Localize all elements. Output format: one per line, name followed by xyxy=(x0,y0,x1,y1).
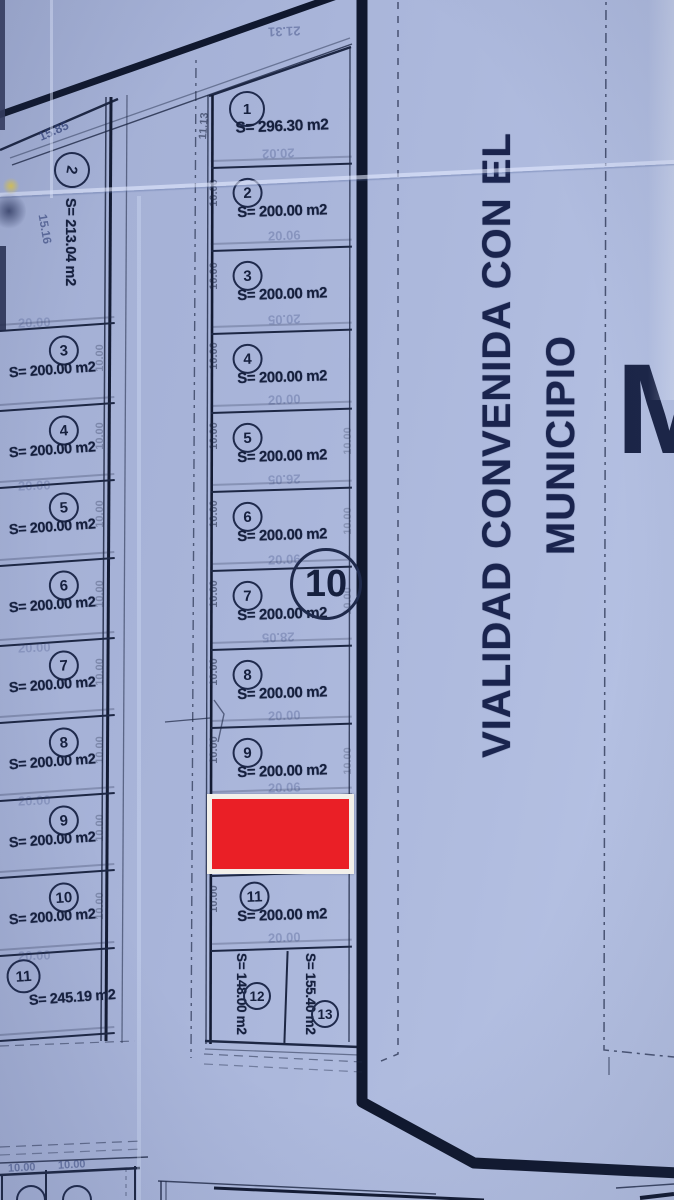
dimension-label: 10.00 xyxy=(8,1161,36,1174)
lot-area-label: S= 200.00 m2 xyxy=(215,446,349,467)
dimension-label-ghost: 20.00 xyxy=(18,314,51,330)
lot-area-label: S= 245.19 m2 xyxy=(18,986,127,1009)
dimension-tick: 10.00 xyxy=(208,650,220,694)
dimension-label-ghost: 20.00 xyxy=(268,707,301,723)
dimension-label-ghost: 20.06 xyxy=(268,227,301,243)
dimension-label-ghost: 21.31 xyxy=(268,23,301,39)
plat-map-photo: 2 S= 213.04 m2 3 S= 200.00 m2 4 S= 200.0… xyxy=(0,0,674,1200)
lot-number: 7 xyxy=(59,657,69,675)
lot-number: 13 xyxy=(317,1007,332,1022)
street-edge-dash-2 xyxy=(204,1064,362,1072)
lot-number: 2 xyxy=(243,184,252,201)
dimension-label-ghost: 28.05 xyxy=(262,629,295,645)
dimension-tick: 10.00 xyxy=(208,171,220,215)
lot-number: 1 xyxy=(243,101,251,118)
lot-area-label: S= 200.00 m2 xyxy=(215,367,349,388)
dimension-label-ghost: 20.02 xyxy=(262,145,295,161)
boundary-outer-line-ghost xyxy=(10,38,350,158)
lot-number: 10 xyxy=(55,888,73,906)
dimension-tick: 10.00 xyxy=(208,572,220,616)
dimension-label-ghost: 20.00 xyxy=(268,391,301,407)
dimension-label-ghost: 20.00 xyxy=(18,947,51,963)
dimension-tick-ghost: 10.00 xyxy=(342,419,354,463)
left-block-outer-edge xyxy=(122,95,127,1043)
lot-number: 4 xyxy=(243,350,252,367)
street-centerline-left xyxy=(191,60,196,1058)
lot-number: 9 xyxy=(243,744,252,761)
paper-edge-shadow-top xyxy=(0,0,5,130)
lot-number-badge: 11 xyxy=(5,958,41,994)
lot-number: 11 xyxy=(15,967,32,985)
lot-number: 11 xyxy=(246,888,262,905)
lot-number: 8 xyxy=(59,734,69,752)
dimension-tick-ghost: 10.00 xyxy=(94,806,106,850)
lot-area-label: S= 200.00 m2 xyxy=(215,761,349,782)
dimension-tick-ghost: 10.00 xyxy=(342,499,354,543)
lot-number: 5 xyxy=(59,499,69,517)
lot-number-badge: 13 xyxy=(311,1000,339,1028)
dimension-tick: 10.00 xyxy=(208,414,220,458)
bottom-right-line-thick xyxy=(640,1194,674,1198)
dimension-tick-ghost: 10.00 xyxy=(94,650,106,694)
dimension-tick-ghost: 10.00 xyxy=(94,492,106,536)
lot-number: 6 xyxy=(243,508,252,525)
lot-number: 12 xyxy=(249,989,264,1004)
lot-area-label: S= 200.00 m2 xyxy=(0,906,107,929)
lot1-top-edge xyxy=(209,47,351,96)
lot-area-label: S= 200.00 m2 xyxy=(215,525,349,546)
dimension-label-ghost: 20.06 xyxy=(268,551,301,567)
lot-number-badge: 12 xyxy=(243,982,271,1010)
lot-number: 6 xyxy=(59,577,69,595)
dimension-tick-ghost: 10.00 xyxy=(342,579,354,623)
lot-area-label: S= 200.00 m2 xyxy=(215,284,349,305)
dimension-label: 10.00 xyxy=(58,1158,86,1171)
paper-crease-vertical-top xyxy=(50,0,53,198)
street-edge-dash-1 xyxy=(204,1054,362,1062)
street-edge-dash-3 xyxy=(0,1041,135,1046)
dimension-tick-ghost: 10.00 xyxy=(94,336,106,380)
lot-area-label: S= 200.00 m2 xyxy=(215,683,349,704)
dimension-tick: 10.00 xyxy=(208,492,220,536)
lot-number: 5 xyxy=(243,429,252,446)
lot-area-label: S= 200.00 m2 xyxy=(0,829,107,852)
bottom-left-dash-2 xyxy=(0,1149,142,1155)
dimension-tick: 10.00 xyxy=(208,728,220,772)
lot-number: 2 xyxy=(63,164,81,175)
lot-number: 9 xyxy=(59,812,69,830)
lot-number: 7 xyxy=(243,587,252,604)
dimension-label-ghost: 20.00 xyxy=(18,639,51,655)
paper-crease-vertical-bottom xyxy=(137,196,141,1200)
lot-area-label: S= 200.00 m2 xyxy=(0,594,107,617)
lot-area-label: S= 200.00 m2 xyxy=(0,439,107,462)
lot-area-label: S= 200.00 m2 xyxy=(215,201,349,222)
dimension-tick-ghost: 10.00 xyxy=(94,728,106,772)
lot-number: 8 xyxy=(243,666,252,683)
survey-extension-line xyxy=(165,718,210,722)
dimension-tick: 10.00 xyxy=(208,254,220,298)
dimension-tick-ghost: 10.00 xyxy=(342,739,354,783)
highlight-red-fill xyxy=(212,799,349,869)
center-block-bottom-edge xyxy=(205,1041,359,1047)
dimension-label-ghost: 26.05 xyxy=(268,471,301,487)
dimension-label-ghost: 20.00 xyxy=(18,792,51,808)
boundary-outer-line xyxy=(12,44,352,165)
lot-area-label: S= 200.00 m2 xyxy=(0,359,107,382)
lot-area-label: S= 200.00 m2 xyxy=(0,751,107,774)
highlight-marker xyxy=(207,794,354,874)
lot-number: 4 xyxy=(59,422,69,440)
bottom-right-line-thin xyxy=(616,1184,674,1188)
dimension-label-ghost: 20.05 xyxy=(268,311,301,327)
lot-area-label: S= 200.00 m2 xyxy=(0,674,107,697)
lot-number: 3 xyxy=(59,342,69,360)
lot-area-label: S= 213.04 m2 xyxy=(62,198,78,314)
paper-edge-shadow-mid xyxy=(0,246,6,330)
paper-edge-highlight xyxy=(648,0,674,400)
dimension-tick-ghost: 10.00 xyxy=(94,884,106,928)
lot-area-label: S= 200.00 m2 xyxy=(215,905,349,926)
lot-area-label: S= 155.40 m2 xyxy=(303,953,318,1039)
bottom-left-dash-1 xyxy=(0,1141,142,1147)
center-block-bottom-edge-outer xyxy=(205,1049,359,1055)
block-number: 10 xyxy=(305,563,347,606)
dimension-tick: 10.00 xyxy=(208,334,220,378)
dimension-label-ghost: 20.00 xyxy=(268,929,301,945)
dimension-label-ghost: 20.00 xyxy=(18,477,51,493)
lot-area-label: S= 200.00 m2 xyxy=(0,516,107,539)
dimension-tick: 10.00 xyxy=(208,877,220,921)
dimension-tick-ghost: 10.00 xyxy=(94,572,106,616)
lot-number: 3 xyxy=(243,267,252,284)
street-name-label: VIALIDAD CONVENIDA CON EL MUNICIPIO xyxy=(465,25,529,865)
dimension-tick-ghost: 10.00 xyxy=(94,414,106,458)
row-dashed-line-1 xyxy=(381,2,398,1061)
